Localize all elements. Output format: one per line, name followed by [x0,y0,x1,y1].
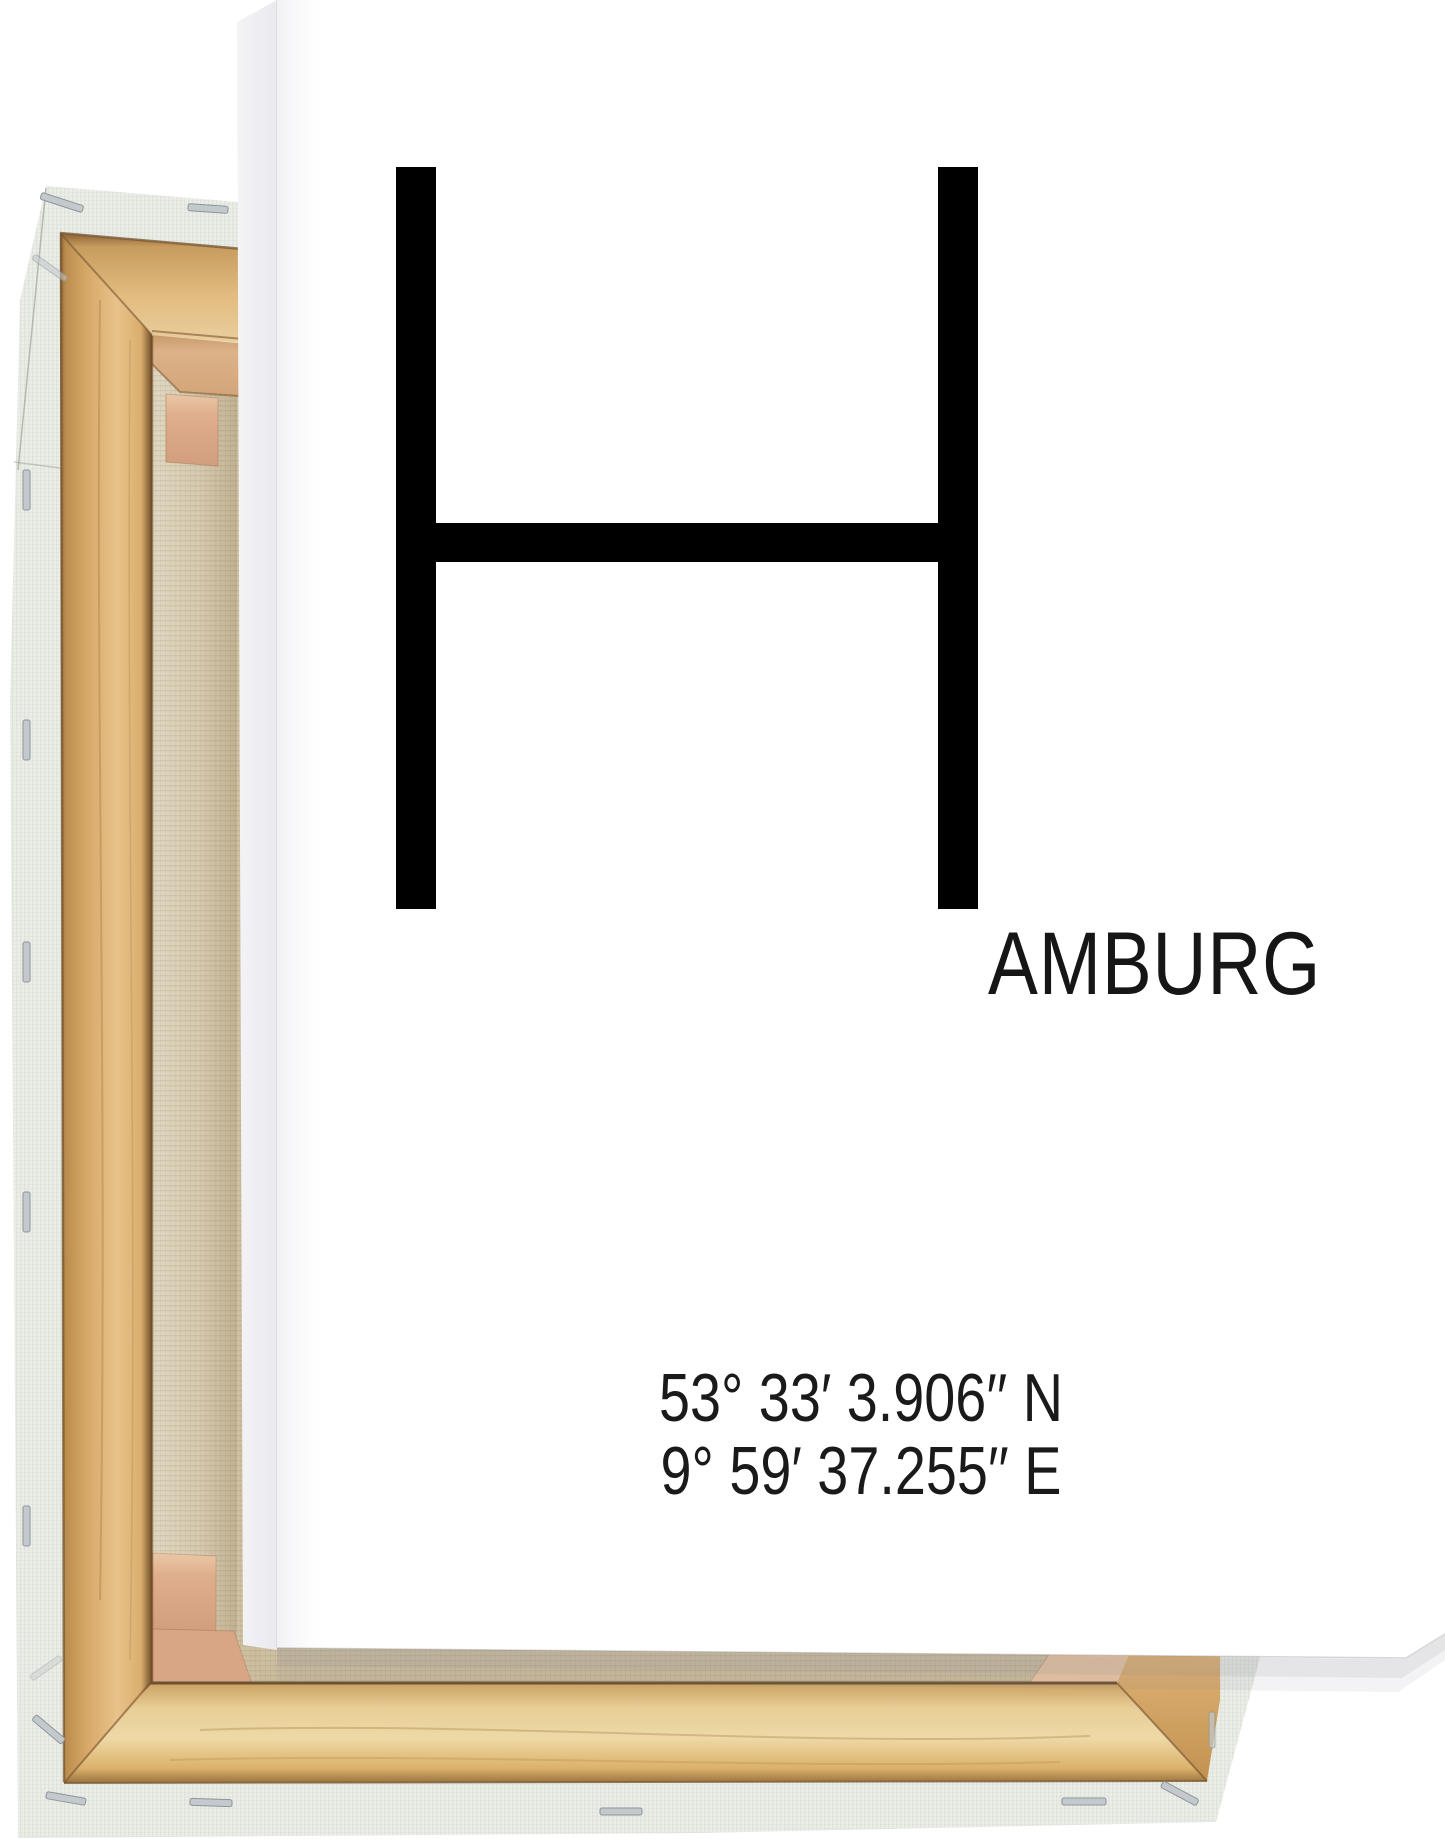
frame-left-bar [60,233,152,1783]
staple [600,1808,642,1815]
staple [1062,1798,1106,1805]
staple [23,942,30,982]
poster-panel [237,0,1445,1692]
poster-face [277,0,1445,1658]
corner-brace-top [166,394,218,466]
staple [23,720,30,760]
staple [190,1798,232,1806]
poster-side-edge [237,0,277,1650]
staple [23,1192,30,1232]
staple [23,1506,30,1546]
product-photo-canvas-print: H AMBURG 53° 33′ 3.906′′ N 9° 59′ 37.255… [0,0,1445,1839]
staple [1209,1712,1215,1748]
scene-graphic [0,0,1445,1839]
staple [23,470,30,510]
